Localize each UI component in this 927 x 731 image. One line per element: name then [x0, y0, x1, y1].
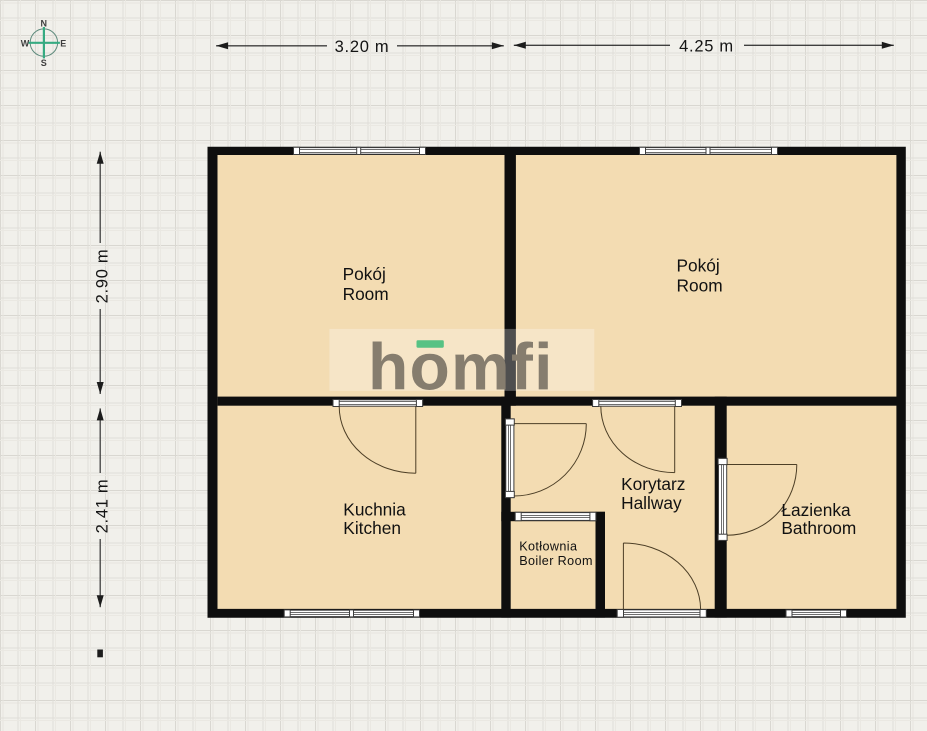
svg-text:Room: Room — [343, 284, 389, 304]
svg-text:W: W — [21, 38, 30, 48]
svg-text:Kotłownia: Kotłownia — [519, 540, 577, 554]
svg-text:Pokój: Pokój — [343, 264, 386, 284]
svg-text:2.90 m: 2.90 m — [93, 249, 111, 304]
svg-text:homfi: homfi — [368, 329, 554, 403]
svg-text:Boiler Room: Boiler Room — [519, 554, 593, 568]
svg-text:Bathroom: Bathroom — [781, 518, 856, 538]
svg-text:Hallway: Hallway — [621, 493, 682, 513]
svg-text:Room: Room — [677, 276, 723, 296]
svg-text:4.25 m: 4.25 m — [679, 37, 734, 55]
svg-text:3.20 m: 3.20 m — [335, 38, 390, 56]
svg-text:Łazienka: Łazienka — [781, 500, 851, 520]
svg-text:Kitchen: Kitchen — [343, 518, 401, 538]
svg-text:Kuchnia: Kuchnia — [343, 500, 406, 520]
svg-text:2.41 m: 2.41 m — [93, 479, 111, 534]
svg-text:E: E — [60, 38, 66, 48]
svg-text:Korytarz: Korytarz — [621, 474, 685, 494]
svg-text:Pokój: Pokój — [677, 256, 720, 276]
svg-text:N: N — [41, 18, 48, 28]
svg-text:S: S — [41, 58, 47, 68]
